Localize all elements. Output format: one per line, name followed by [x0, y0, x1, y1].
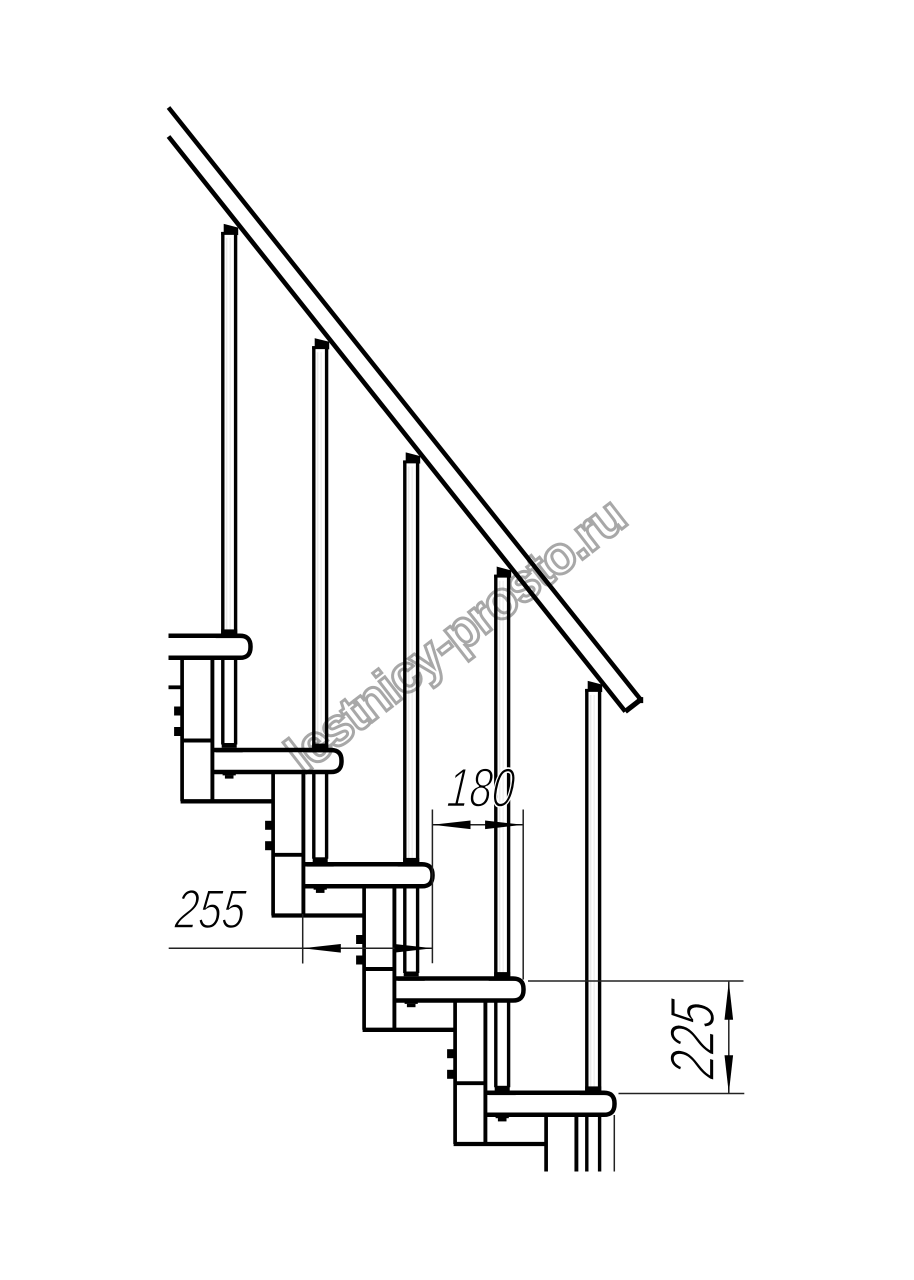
svg-text:180: 180 [445, 758, 518, 820]
svg-text:255: 255 [172, 880, 249, 941]
svg-text:225: 225 [657, 995, 728, 1082]
